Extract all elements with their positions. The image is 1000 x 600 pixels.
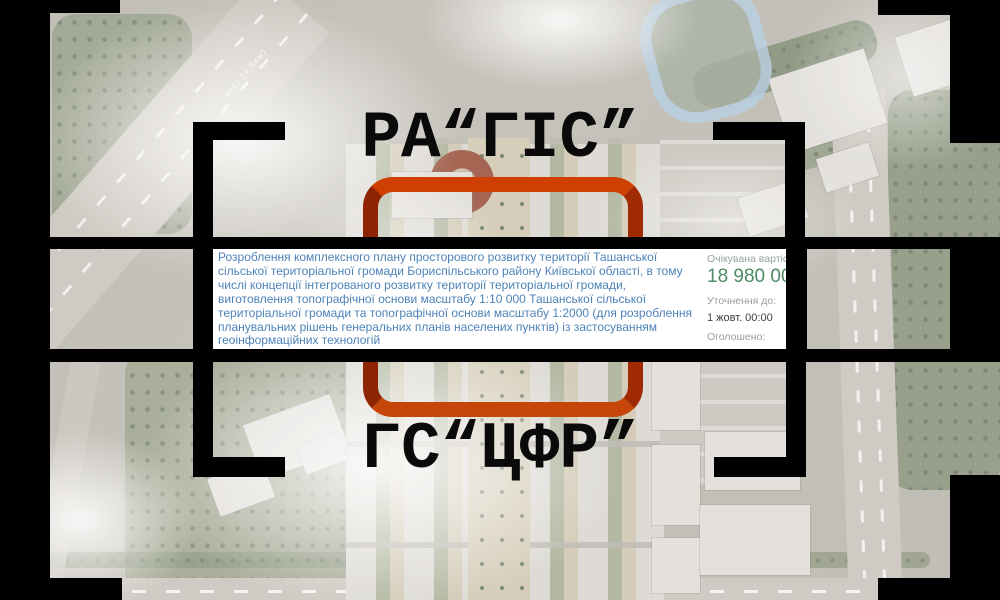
title-bottom: ГС“ЦФР”	[0, 417, 1000, 483]
frame-band-lower	[0, 349, 1000, 362]
clarification-label: Уточнення до:	[707, 295, 786, 307]
announced-label: Оголошено:	[707, 331, 786, 343]
promo-graphic: міст (4,5км)	[0, 0, 1000, 600]
frame-band-upper	[0, 237, 1000, 249]
frame-bottom-right-bar	[878, 578, 1000, 600]
frame-left-column	[0, 0, 50, 600]
frame-strip-mid-left	[193, 249, 213, 349]
expected-value-amount: 18 980 000,	[707, 266, 786, 288]
frame-bottom-left-bar	[50, 578, 122, 600]
expected-value-label: Очікувана вартість	[707, 253, 786, 265]
clarification-value: 1 жовт. 00:00	[707, 312, 786, 324]
frame-strip-mid-right	[785, 249, 807, 349]
tender-description-link[interactable]: Розроблення комплексного плану просторов…	[218, 251, 698, 348]
tender-price-column: Очікувана вартість 18 980 000, Уточнення…	[707, 251, 786, 349]
title-top: РА“ГІС”	[0, 106, 1000, 172]
tender-card: Розроблення комплексного плану просторов…	[213, 249, 786, 349]
announced-date: 25 вер. 2025	[707, 348, 786, 349]
frame-right-column-mid	[950, 237, 1000, 362]
